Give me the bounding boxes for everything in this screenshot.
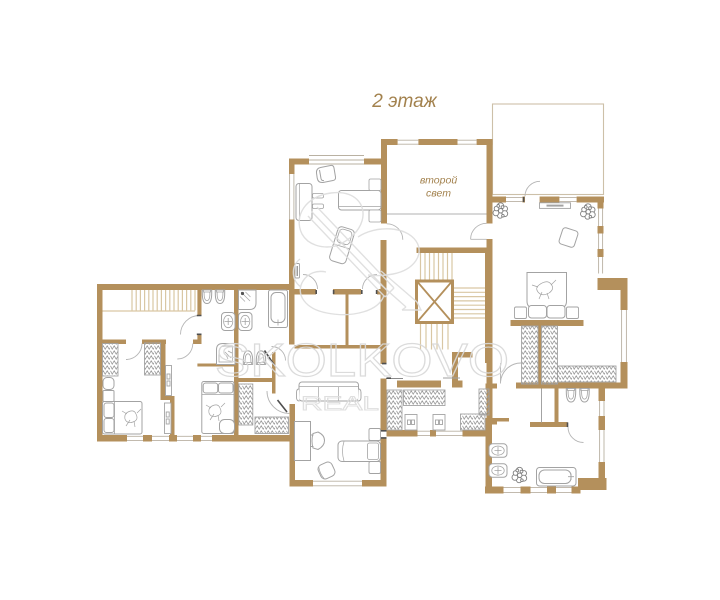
svg-text:REAL: REAL xyxy=(301,394,379,415)
svg-text:SKOLKOVO: SKOLKOVO xyxy=(215,334,509,386)
svg-text:2 этаж: 2 этаж xyxy=(371,91,437,112)
svg-text:свет: свет xyxy=(426,188,451,200)
svg-text:второй: второй xyxy=(420,175,458,187)
